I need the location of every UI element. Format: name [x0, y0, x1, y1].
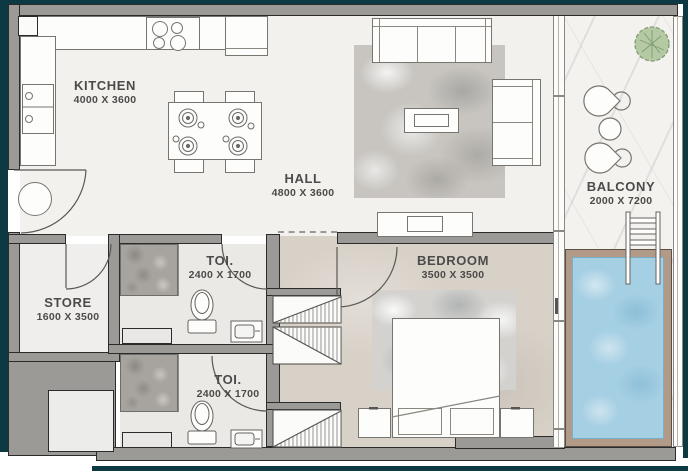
room-label-bedroom: BEDROOM 3500 X 3500	[383, 254, 523, 281]
store-dims: 1600 X 3500	[13, 311, 123, 323]
balcony-table	[599, 118, 621, 140]
tree	[635, 27, 669, 61]
room-label-toilet-lower: TOI. 2400 X 1700	[173, 373, 283, 400]
bedroom-name: BEDROOM	[383, 254, 523, 269]
basin-upper	[231, 321, 262, 342]
toilet-upper	[188, 290, 216, 333]
hall-name: HALL	[243, 172, 363, 187]
pool-ladder	[626, 212, 660, 284]
balcony-dims: 2000 X 7200	[556, 195, 686, 207]
room-label-store: STORE 1600 X 3500	[13, 296, 123, 323]
room-label-hall: HALL 4800 X 3600	[243, 172, 363, 199]
nightstand-knob-right	[511, 407, 520, 410]
toilet-lower-name: TOI.	[173, 373, 283, 388]
store-door	[66, 244, 111, 289]
hall-dims: 4800 X 3600	[243, 187, 363, 199]
bedroom-dims: 3500 X 3500	[383, 269, 523, 281]
basin-lower	[231, 430, 262, 448]
wardrobe-lower	[273, 410, 341, 447]
entry-door	[14, 170, 86, 233]
room-label-toilet-upper: TOI. 2400 X 1700	[165, 254, 275, 281]
kitchen-name: KITCHEN	[45, 79, 165, 94]
detail-overlay	[0, 0, 688, 471]
place-settings	[173, 109, 254, 155]
balcony-chair-1	[584, 86, 630, 116]
balcony-name: BALCONY	[556, 180, 686, 195]
toilet-lower-dims: 2400 X 1700	[173, 388, 283, 400]
room-label-balcony: BALCONY 2000 X 7200	[556, 180, 686, 207]
toilet-lower	[188, 401, 216, 444]
nightstand-knob-left	[369, 407, 378, 410]
bed-fold-line	[392, 396, 500, 417]
store-name: STORE	[13, 296, 123, 311]
balcony-chair-2	[585, 143, 631, 173]
kitchen-dims: 4000 X 3600	[45, 94, 165, 106]
toilet-upper-name: TOI.	[165, 254, 275, 269]
room-label-kitchen: KITCHEN 4000 X 3600	[45, 79, 165, 106]
floor-plan: KITCHEN 4000 X 3600 HALL 4800 X 3600 BAL…	[0, 0, 688, 471]
toilet-upper-dims: 2400 X 1700	[165, 269, 275, 281]
stove-burners	[153, 22, 186, 51]
wardrobe-upper	[273, 296, 341, 364]
